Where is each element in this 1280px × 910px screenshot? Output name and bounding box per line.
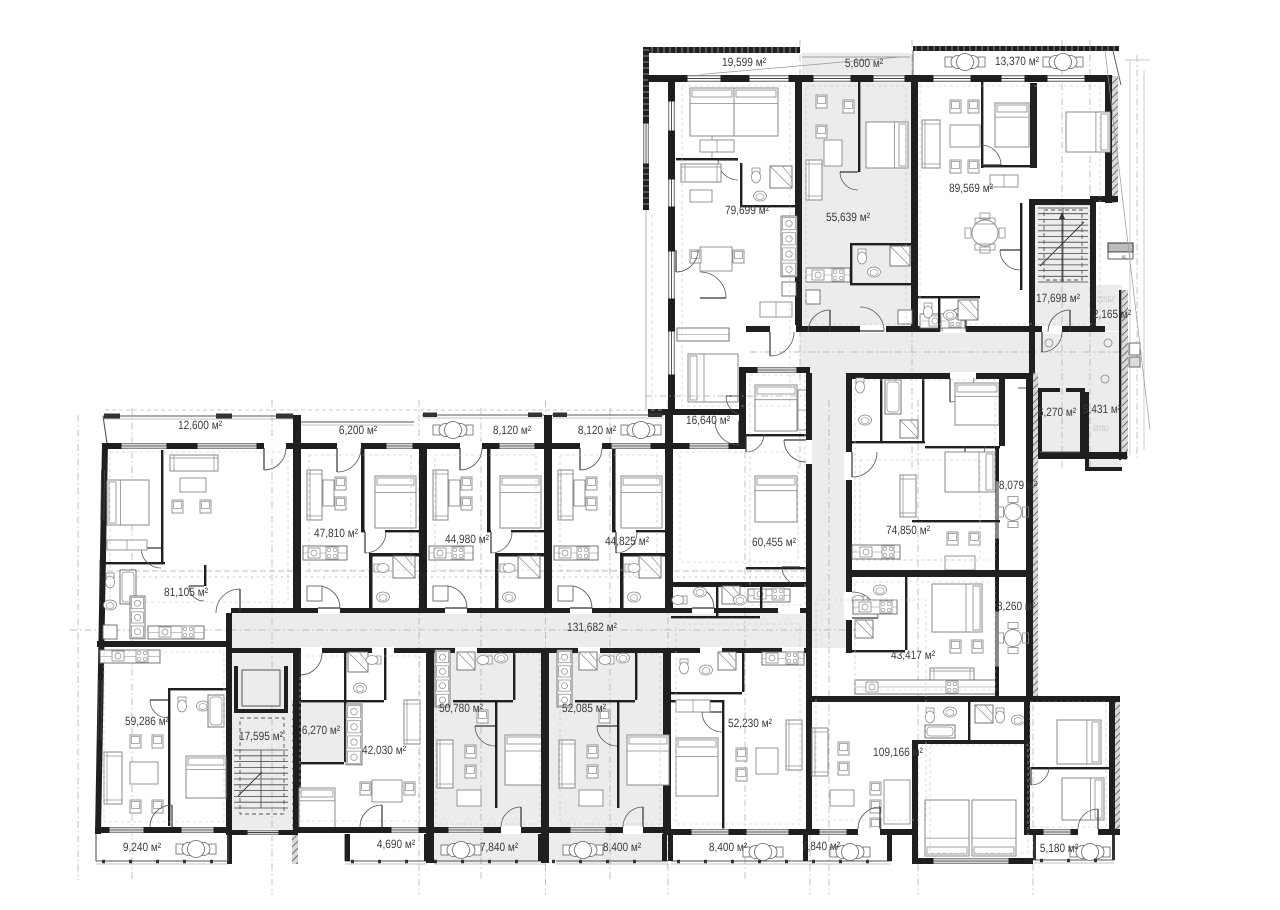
svg-text:131,682 м²: 131,682 м² bbox=[567, 620, 617, 634]
svg-text:19,599 м²: 19,599 м² bbox=[722, 55, 766, 69]
svg-text:59,286 м²: 59,286 м² bbox=[125, 714, 169, 728]
svg-text:Ø360: Ø360 bbox=[1093, 424, 1109, 433]
svg-text:109,166 м²: 109,166 м² bbox=[873, 745, 923, 759]
svg-text:8,120 м²: 8,120 м² bbox=[493, 423, 531, 437]
svg-text:52,085 м²: 52,085 м² bbox=[562, 701, 606, 715]
svg-text:42,030 м²: 42,030 м² bbox=[362, 743, 406, 757]
svg-text:8,260 м²: 8,260 м² bbox=[997, 599, 1035, 613]
svg-text:44,825 м²: 44,825 м² bbox=[605, 534, 649, 548]
svg-text:13,370 м²: 13,370 м² bbox=[995, 54, 1039, 68]
svg-text:9,240 м²: 9,240 м² bbox=[123, 840, 161, 854]
svg-text:7,840 м²: 7,840 м² bbox=[802, 839, 840, 853]
svg-text:17,698 м²: 17,698 м² bbox=[1036, 291, 1080, 305]
svg-text:55,639 м²: 55,639 м² bbox=[826, 210, 870, 224]
svg-text:8,400 м²: 8,400 м² bbox=[709, 840, 747, 854]
svg-text:95: 95 bbox=[1122, 255, 1127, 261]
svg-text:6,270 м²: 6,270 м² bbox=[1038, 405, 1076, 419]
svg-text:6,200 м²: 6,200 м² bbox=[339, 423, 377, 437]
svg-text:5,431 м²: 5,431 м² bbox=[1083, 402, 1121, 416]
svg-text:2,165 м²: 2,165 м² bbox=[1093, 307, 1131, 321]
svg-text:50,780 м²: 50,780 м² bbox=[439, 701, 483, 715]
svg-text:8,400 м²: 8,400 м² bbox=[603, 840, 641, 854]
svg-text:47,810 м²: 47,810 м² bbox=[314, 526, 358, 540]
svg-text:6,270 м²: 6,270 м² bbox=[302, 723, 340, 737]
svg-text:74,850 м²: 74,850 м² bbox=[886, 523, 930, 537]
svg-text:16,640 м²: 16,640 м² bbox=[686, 413, 730, 427]
svg-text:60,455 м²: 60,455 м² bbox=[752, 535, 796, 549]
svg-text:43,417 м²: 43,417 м² bbox=[891, 648, 935, 662]
svg-text:89,569 м²: 89,569 м² bbox=[949, 181, 993, 195]
svg-text:44,980 м²: 44,980 м² bbox=[445, 532, 489, 546]
svg-text:7,840 м²: 7,840 м² bbox=[480, 840, 518, 854]
svg-text:17,595 м²: 17,595 м² bbox=[239, 729, 283, 743]
svg-text:225БГ: 225БГ bbox=[1096, 295, 1116, 304]
svg-text:81,105 м²: 81,105 м² bbox=[164, 585, 208, 599]
svg-text:8,079 м²: 8,079 м² bbox=[999, 478, 1037, 492]
svg-text:79,699 м²: 79,699 м² bbox=[725, 203, 769, 217]
svg-text:12,600 м²: 12,600 м² bbox=[178, 418, 222, 432]
svg-text:8,120 м²: 8,120 м² bbox=[578, 423, 616, 437]
svg-text:4,690 м²: 4,690 м² bbox=[377, 837, 415, 851]
svg-text:52,230 м²: 52,230 м² bbox=[728, 716, 772, 730]
svg-text:5,180 м²: 5,180 м² bbox=[1040, 841, 1078, 855]
svg-text:5,600 м²: 5,600 м² bbox=[845, 56, 883, 70]
